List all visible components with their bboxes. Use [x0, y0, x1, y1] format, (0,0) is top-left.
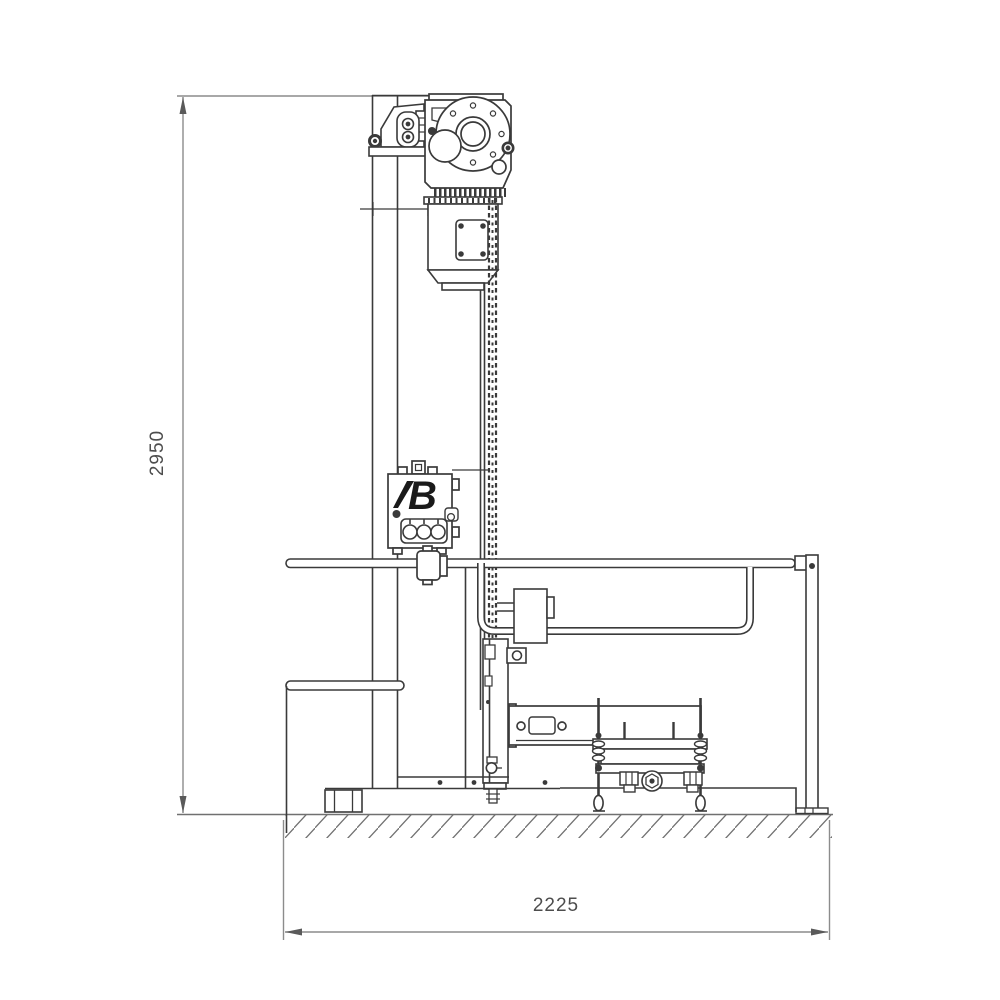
post-bolt [809, 563, 815, 569]
beam-slot [529, 717, 555, 734]
chain-anchor [486, 763, 496, 773]
motor [424, 197, 502, 290]
machine-base [325, 777, 560, 812]
arrow-up [180, 97, 187, 114]
frame-top [593, 739, 707, 749]
lifting-eye-hole [416, 465, 422, 471]
motor-taper [428, 270, 498, 283]
gearbox [425, 94, 513, 193]
carriage-detail-top [485, 645, 495, 659]
base-bolt-3 [543, 780, 548, 785]
button-3 [431, 525, 445, 539]
control-box: B [388, 461, 488, 554]
dimension-lines [177, 96, 830, 940]
hanger-left [620, 772, 638, 785]
drawing-canvas: B [0, 0, 1000, 1000]
arrow-right [811, 929, 828, 936]
arrow-left [285, 929, 302, 936]
gearbox-plug [492, 160, 506, 174]
technical-drawing: B [0, 0, 1000, 1000]
upper-rail [286, 559, 795, 568]
gearbox-bolt-left [429, 128, 435, 134]
frame-mid [601, 749, 699, 764]
carriage-detail-mid [485, 676, 492, 686]
width-dimension-label: 2225 [533, 895, 579, 916]
button-2 [417, 525, 431, 539]
tensioner-body [514, 589, 547, 643]
wheel-right [696, 795, 705, 810]
hanger-foot-right [687, 785, 698, 792]
wheel-left [594, 795, 603, 810]
lower-left-rail [286, 681, 404, 690]
base-bolt-2 [472, 780, 477, 785]
shaft-bore [461, 122, 485, 146]
hanger-foot-left [624, 785, 635, 792]
box-foot-left [393, 548, 402, 554]
arrow-down [180, 796, 187, 813]
base-foot [325, 790, 362, 812]
height-dimension-label: 2950 [147, 430, 168, 476]
logo-letter: B [408, 474, 437, 518]
motor-foot [442, 283, 484, 290]
dimension-arrows [180, 97, 829, 936]
latch-hole [448, 514, 455, 521]
ground [177, 815, 833, 839]
push-buttons [403, 519, 445, 539]
guard-rails [286, 555, 828, 833]
indicator-light [393, 510, 401, 518]
gland-right-1 [452, 479, 459, 490]
tensioner-tab [547, 597, 554, 618]
base-bolt-1 [438, 780, 443, 785]
right-post-foot [796, 808, 828, 814]
bracket-hole [513, 651, 522, 660]
pendant-body [417, 551, 440, 580]
right-guard-post [806, 555, 818, 810]
beam-hole-right [558, 722, 566, 730]
ground-hatching [285, 815, 832, 838]
gland-right-3 [452, 527, 459, 537]
button-1 [403, 525, 417, 539]
gearbox-boss-circle [429, 130, 461, 162]
anchor-bolt [489, 789, 497, 803]
hanger-right [684, 772, 702, 785]
beam-hole-left [517, 722, 525, 730]
